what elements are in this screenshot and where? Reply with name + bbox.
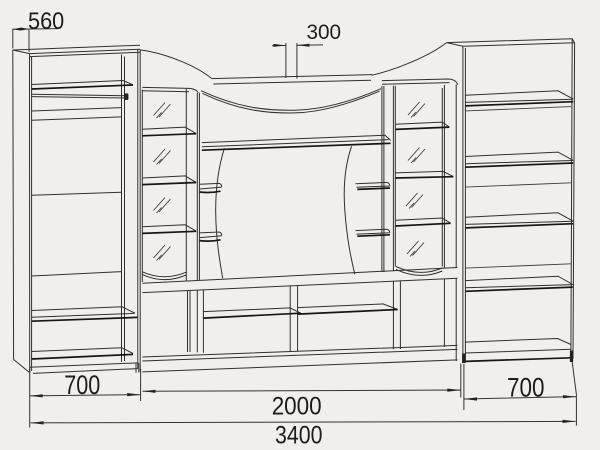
svg-text:700: 700 — [507, 372, 545, 402]
svg-text:700: 700 — [64, 370, 100, 400]
svg-text:560: 560 — [28, 8, 64, 35]
svg-text:3400: 3400 — [275, 421, 323, 449]
svg-text:2000: 2000 — [272, 392, 322, 420]
svg-text:300: 300 — [307, 21, 342, 44]
